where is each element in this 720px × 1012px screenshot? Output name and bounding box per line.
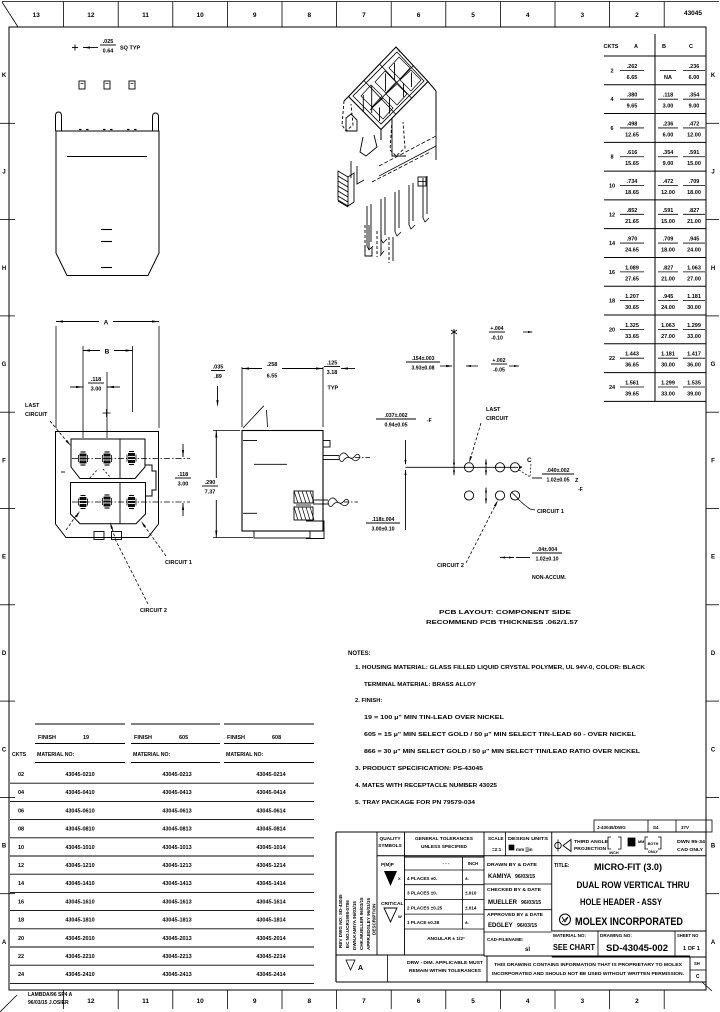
svg-text:6.00: 6.00 — [689, 75, 700, 81]
svg-text:THIS DRAWING CONTAINS INFORMAT: THIS DRAWING CONTAINS INFORMATION THAT I… — [494, 962, 683, 967]
svg-text:43045-0414: 43045-0414 — [256, 790, 286, 796]
svg-text:96/03/15: 96/03/15 — [521, 900, 541, 906]
svg-text:12.65: 12.65 — [625, 132, 639, 138]
svg-text:.290: .290 — [205, 480, 216, 486]
svg-text:CIRCUIT 2: CIRCUIT 2 — [437, 563, 464, 569]
svg-text:43045-1010: 43045-1010 — [65, 845, 94, 851]
svg-text:7: 7 — [362, 998, 366, 1005]
svg-text:1.02±0.10: 1.02±0.10 — [535, 557, 558, 563]
svg-text:1.02±0.05: 1.02±0.05 — [546, 478, 569, 484]
svg-text:96/03/15: 96/03/15 — [515, 874, 535, 880]
svg-text:43045-2013: 43045-2013 — [162, 936, 191, 942]
svg-text:.970: .970 — [627, 237, 638, 243]
svg-text:C: C — [689, 44, 693, 50]
svg-text:SD-43045-002: SD-43045-002 — [606, 943, 668, 954]
svg-text:.591: .591 — [663, 208, 674, 214]
svg-text:15.65: 15.65 — [625, 161, 639, 167]
svg-text:C: C — [527, 457, 532, 464]
svg-text:CKTS: CKTS — [604, 44, 619, 50]
svg-text:SYMBOLS: SYMBOLS — [378, 843, 403, 849]
svg-text:33.00: 33.00 — [687, 334, 701, 340]
svg-text:43045-2414: 43045-2414 — [256, 972, 286, 978]
svg-text:1.443: 1.443 — [625, 352, 639, 358]
svg-text:SQ TYP: SQ TYP — [120, 46, 141, 52]
svg-text:C: C — [696, 974, 700, 980]
svg-text:18: 18 — [18, 918, 24, 924]
svg-text:24: 24 — [609, 385, 616, 391]
svg-text:X: X — [398, 876, 401, 881]
svg-text:18.65: 18.65 — [625, 190, 639, 196]
svg-text:.125: .125 — [327, 361, 338, 367]
svg-text:33.65: 33.65 — [625, 334, 639, 340]
svg-text:DESCRIPTION: DESCRIPTION — [372, 903, 377, 935]
svg-text:.498: .498 — [627, 121, 638, 127]
svg-text:1.417: 1.417 — [687, 352, 701, 358]
svg-text:43045-1413: 43045-1413 — [162, 881, 191, 887]
svg-text:.827: .827 — [663, 265, 674, 271]
svg-text:43045-1614: 43045-1614 — [256, 899, 286, 905]
svg-text:24.00: 24.00 — [687, 248, 701, 254]
svg-text:43045-1213: 43045-1213 — [162, 863, 191, 869]
svg-text:5: 5 — [471, 12, 475, 19]
svg-text:.616: .616 — [627, 150, 638, 156]
svg-text:LAMBDA/96 SP4 A: LAMBDA/96 SP4 A — [28, 992, 73, 998]
svg-text:10: 10 — [609, 184, 615, 190]
svg-text:INCORPORATED AND SHOULD NOT BE: INCORPORATED AND SHOULD NOT BE USED WITH… — [492, 971, 684, 976]
svg-text:±.: ±. — [465, 920, 469, 925]
svg-text:18.00: 18.00 — [661, 248, 675, 254]
svg-text:12: 12 — [609, 212, 615, 218]
svg-text:6.65: 6.65 — [627, 75, 638, 81]
svg-text:19 = 100 µ" MIN TIN-LEAD OVER: 19 = 100 µ" MIN TIN-LEAD OVER NICKEL — [364, 715, 505, 721]
svg-text:43045-0813: 43045-0813 — [162, 827, 191, 833]
svg-text:C: C — [2, 747, 7, 753]
svg-text:APPR.EDGLEY 96/03/15: APPR.EDGLEY 96/03/15 — [366, 898, 371, 950]
svg-text:GENERAL TOLERANCES: GENERAL TOLERANCES — [415, 836, 474, 842]
svg-text:W: W — [398, 914, 402, 919]
svg-text:1 PLACE ±0.38: 1 PLACE ±0.38 — [407, 920, 440, 925]
svg-text:24: 24 — [18, 972, 25, 978]
svg-text:866 = 30 µ" MIN SELECT GOLD /: 866 = 30 µ" MIN SELECT GOLD / 50 µ" MIN … — [364, 749, 641, 755]
svg-text:11: 11 — [142, 998, 149, 1005]
svg-text:A: A — [104, 320, 109, 327]
svg-text:EDGLEY: EDGLEY — [488, 923, 513, 929]
svg-text:.709: .709 — [663, 237, 674, 243]
svg-text:2: 2 — [635, 12, 639, 19]
svg-text:B: B — [662, 44, 666, 50]
svg-text:+.002: +.002 — [492, 358, 505, 364]
svg-text:4: 4 — [610, 97, 614, 103]
svg-text:43045-0214: 43045-0214 — [256, 772, 286, 778]
svg-text:J: J — [2, 169, 5, 175]
svg-text:±.010: ±.010 — [465, 891, 477, 896]
svg-text:3 PLACES ±0.: 3 PLACES ±0. — [407, 891, 437, 896]
svg-text:MATERIAL NO:: MATERIAL NO: — [553, 933, 586, 938]
svg-text:TITLE:: TITLE: — [554, 863, 570, 869]
svg-text:MUELLER: MUELLER — [488, 900, 518, 906]
svg-text:21.00: 21.00 — [661, 276, 675, 282]
svg-text:43045-0210: 43045-0210 — [65, 772, 94, 778]
svg-text:9: 9 — [253, 12, 257, 19]
svg-text:RECOMMEND PCB THICKNESS .062/1: RECOMMEND PCB THICKNESS .062/1.57 — [426, 620, 578, 626]
svg-text:- - -: - - - — [443, 861, 450, 866]
svg-text:.118: .118 — [178, 472, 188, 478]
svg-text:P(M)P: P(M)P — [381, 862, 394, 867]
svg-text:sl: sl — [525, 947, 530, 953]
svg-text:CAD-FILENAME:: CAD-FILENAME: — [487, 937, 524, 942]
svg-text:43045-0810: 43045-0810 — [65, 827, 94, 833]
svg-text:.04±.004: .04±.004 — [537, 547, 557, 553]
svg-text:4 PLACES ±0.: 4 PLACES ±0. — [407, 876, 437, 881]
svg-text:SCALE: SCALE — [488, 836, 504, 841]
svg-text:3.00±0.10: 3.00±0.10 — [371, 527, 394, 533]
svg-text:NA: NA — [664, 75, 672, 81]
svg-text:.025: .025 — [103, 39, 114, 45]
svg-text:43045-1613: 43045-1613 — [162, 899, 191, 905]
svg-text:7.37: 7.37 — [205, 490, 216, 496]
svg-text:.154±.003: .154±.003 — [411, 356, 434, 362]
svg-text:18.00: 18.00 — [687, 190, 701, 196]
svg-text:3: 3 — [580, 998, 584, 1005]
svg-text:9.00: 9.00 — [689, 104, 700, 110]
svg-text:.118: .118 — [91, 377, 101, 383]
svg-text:43045-0614: 43045-0614 — [256, 808, 286, 814]
svg-text:1.535: 1.535 — [687, 380, 701, 386]
svg-text:J-43045/DWG: J-43045/DWG — [597, 825, 626, 830]
svg-text:D: D — [711, 651, 716, 657]
svg-text:DESIGN UNITS: DESIGN UNITS — [508, 836, 548, 841]
svg-text:K: K — [2, 73, 7, 79]
svg-text:43045-0410: 43045-0410 — [65, 790, 94, 796]
svg-text:1.299: 1.299 — [687, 323, 701, 329]
svg-text:DUAL ROW VERTICAL THRU: DUAL ROW VERTICAL THRU — [577, 880, 690, 891]
svg-text:MATERIAL NO:: MATERIAL NO: — [133, 752, 171, 758]
svg-text:19: 19 — [83, 735, 89, 741]
svg-text:TERMINAL MATERIAL: BRASS ALLOY: TERMINAL MATERIAL: BRASS ALLOY — [364, 682, 476, 688]
svg-text:B: B — [711, 844, 716, 850]
svg-text:-0.05: -0.05 — [493, 368, 505, 374]
svg-text:15.00: 15.00 — [661, 219, 675, 225]
svg-text:DRW - DIM. APPLICABLE MUST: DRW - DIM. APPLICABLE MUST — [407, 960, 483, 965]
svg-text:0.94±0.05: 0.94±0.05 — [384, 423, 407, 429]
svg-text:12: 12 — [18, 863, 24, 869]
svg-text:15.00: 15.00 — [687, 161, 701, 167]
svg-text:16: 16 — [609, 270, 615, 276]
svg-text:22: 22 — [609, 356, 615, 362]
svg-text:39.00: 39.00 — [687, 391, 701, 397]
svg-text:CAD ONLY: CAD ONLY — [677, 847, 703, 852]
svg-text:APPROVED BY & DATE: APPROVED BY & DATE — [487, 912, 543, 917]
svg-text:E: E — [2, 555, 6, 561]
svg-text:G: G — [711, 362, 716, 368]
svg-text:14: 14 — [609, 241, 616, 247]
svg-text:1.561: 1.561 — [625, 380, 639, 386]
svg-text:-F: -F — [578, 487, 583, 493]
svg-text:.354: .354 — [663, 150, 675, 156]
svg-text:H: H — [2, 266, 6, 272]
svg-text:PCB LAYOUT: COMPONENT SIDE: PCB LAYOUT: COMPONENT SIDE — [439, 610, 571, 616]
svg-text:A: A — [358, 965, 363, 972]
svg-text:F: F — [2, 458, 6, 464]
svg-text:27.00: 27.00 — [661, 334, 675, 340]
svg-text:1.089: 1.089 — [625, 265, 639, 271]
svg-text:27.00: 27.00 — [687, 276, 701, 282]
svg-text:DWN 95-34: DWN 95-34 — [677, 839, 706, 844]
svg-text:43045-1410: 43045-1410 — [65, 881, 94, 887]
svg-text:12: 12 — [87, 12, 95, 19]
svg-text:.472: .472 — [663, 179, 674, 185]
svg-text:HOLE HEADER - ASSY: HOLE HEADER - ASSY — [580, 897, 663, 908]
svg-text:605 = 15 µ" MIN SELECT GOLD /: 605 = 15 µ" MIN SELECT GOLD / 50 µ" MIN … — [364, 732, 637, 738]
svg-text:CIRCUIT 1: CIRCUIT 1 — [537, 509, 564, 515]
svg-text:14: 14 — [18, 881, 25, 887]
svg-text:2 PLACES ±0.25: 2 PLACES ±0.25 — [407, 905, 443, 910]
svg-text:.258: .258 — [267, 362, 278, 368]
svg-text:6: 6 — [610, 126, 613, 132]
svg-text:9.00: 9.00 — [663, 161, 674, 167]
svg-text:12: 12 — [87, 998, 95, 1005]
svg-text:1.299: 1.299 — [661, 380, 675, 386]
svg-text:43045-0213: 43045-0213 — [162, 772, 191, 778]
svg-text:SH: SH — [694, 961, 700, 966]
svg-text:6: 6 — [417, 998, 421, 1005]
svg-text:2: 2 — [610, 68, 613, 74]
svg-text:43045-0613: 43045-0613 — [162, 808, 191, 814]
svg-text:43045-2410: 43045-2410 — [65, 972, 94, 978]
svg-text:43045-1210: 43045-1210 — [65, 863, 94, 869]
svg-text:3.00: 3.00 — [178, 482, 189, 488]
svg-text:CIRCUIT: CIRCUIT — [25, 412, 48, 418]
svg-text:.118: .118 — [663, 93, 673, 99]
svg-text:33.00: 33.00 — [661, 391, 675, 397]
svg-text:12.00: 12.00 — [687, 132, 701, 138]
svg-text:.236: .236 — [663, 121, 674, 127]
svg-text:SEE CHART: SEE CHART — [553, 943, 595, 952]
svg-text:7: 7 — [362, 12, 366, 19]
svg-text:FINISH: FINISH — [227, 735, 245, 741]
svg-text:.472: .472 — [689, 121, 700, 127]
svg-text:ANGULAR ± 1/2°: ANGULAR ± 1/2° — [427, 936, 465, 942]
svg-text:43045-0610: 43045-0610 — [65, 808, 94, 814]
svg-text:9.65: 9.65 — [627, 104, 638, 110]
svg-text:18: 18 — [609, 299, 615, 305]
svg-text:REMAIN WITHIN TOLERANCES: REMAIN WITHIN TOLERANCES — [409, 968, 481, 973]
svg-text:43045-2413: 43045-2413 — [162, 972, 191, 978]
svg-text:30.00: 30.00 — [687, 305, 701, 311]
svg-text:FINISH: FINISH — [38, 735, 56, 741]
svg-text:43045-1014: 43045-1014 — [256, 845, 286, 851]
svg-text:QUALITY: QUALITY — [379, 836, 401, 842]
svg-text:43045-0814: 43045-0814 — [256, 827, 286, 833]
svg-text:13: 13 — [33, 12, 41, 19]
svg-text:43045-1814: 43045-1814 — [256, 918, 286, 924]
svg-text:43045-2010: 43045-2010 — [65, 936, 94, 942]
svg-text:8: 8 — [307, 12, 311, 19]
svg-text:43045: 43045 — [684, 10, 702, 17]
svg-text:3.93±0.08: 3.93±0.08 — [411, 366, 434, 372]
svg-text:08: 08 — [18, 827, 24, 833]
svg-text:16: 16 — [18, 899, 24, 905]
svg-text:8: 8 — [610, 155, 613, 161]
svg-text:S4: S4 — [653, 825, 659, 830]
svg-text:30.65: 30.65 — [625, 305, 639, 311]
svg-text:K: K — [711, 73, 716, 79]
svg-text:96/03/15: 96/03/15 — [517, 923, 537, 929]
svg-text:C: C — [711, 747, 716, 753]
svg-text:27.65: 27.65 — [625, 276, 639, 282]
svg-text:.354: .354 — [689, 93, 701, 99]
svg-text:.734: .734 — [627, 179, 639, 185]
svg-text:4. MATES WITH RECEPTACLE NUMBE: 4. MATES WITH RECEPTACLE NUMBER 43025 — [355, 783, 498, 789]
svg-text:43045-1610: 43045-1610 — [65, 899, 94, 905]
svg-text:4: 4 — [526, 12, 530, 19]
svg-text:.118±.004: .118±.004 — [372, 517, 395, 523]
svg-text:605: 605 — [179, 735, 188, 741]
svg-text:NOTES:: NOTES: — [348, 651, 371, 657]
svg-text:CIRCUIT 2: CIRCUIT 2 — [140, 608, 167, 614]
svg-text:43045-2210: 43045-2210 — [65, 954, 94, 960]
svg-text:04: 04 — [18, 790, 25, 796]
svg-text:20: 20 — [609, 327, 615, 333]
svg-text:3.00: 3.00 — [663, 104, 674, 110]
svg-text:20: 20 — [18, 936, 24, 942]
svg-text:DRAWING NO:: DRAWING NO: — [600, 933, 632, 938]
svg-text:1.207: 1.207 — [625, 294, 639, 300]
svg-text:6.00: 6.00 — [663, 132, 674, 138]
svg-text:SHEET NO: SHEET NO — [677, 933, 699, 938]
svg-text:1.063: 1.063 — [661, 323, 675, 329]
svg-text:43045-2214: 43045-2214 — [256, 954, 286, 960]
svg-text:1.063: 1.063 — [687, 265, 701, 271]
svg-text:5. TRAY PACKAGE FOR PN 79579-0: 5. TRAY PACKAGE FOR PN 79579-034 — [355, 800, 476, 806]
svg-text:12.00: 12.00 — [661, 190, 675, 196]
svg-text:0.64: 0.64 — [103, 49, 115, 55]
svg-text:4: 4 — [526, 998, 530, 1005]
svg-text:43045-1414: 43045-1414 — [256, 881, 286, 887]
svg-text:.040±.002: .040±.002 — [546, 468, 569, 474]
svg-text:LAST: LAST — [25, 403, 40, 409]
svg-text:mm []in: mm []in — [516, 847, 533, 852]
svg-text:KAMIYA: KAMIYA — [488, 874, 512, 880]
svg-text:21.00: 21.00 — [687, 219, 701, 225]
svg-text:608: 608 — [272, 735, 281, 741]
svg-text:BOTH: BOTH — [648, 842, 659, 846]
svg-text:22: 22 — [18, 954, 24, 960]
svg-text:CRITICAL: CRITICAL — [381, 901, 403, 907]
svg-text:CIRCUIT: CIRCUIT — [486, 416, 509, 422]
svg-text:30.00: 30.00 — [661, 363, 675, 369]
svg-text:.709: .709 — [689, 179, 700, 185]
svg-text:.262: .262 — [627, 64, 638, 70]
svg-text:43045-1013: 43045-1013 — [162, 845, 191, 851]
svg-text:10: 10 — [196, 12, 204, 19]
svg-text:3. PRODUCT SPECIFICATION: PS-4: 3. PRODUCT SPECIFICATION: PS-43045 — [355, 766, 484, 772]
svg-text:+.004: +.004 — [490, 326, 503, 332]
svg-text:H: H — [711, 266, 715, 272]
svg-text:8: 8 — [307, 998, 311, 1005]
svg-text:J: J — [711, 169, 714, 175]
svg-text:UNLESS SPECIFIED: UNLESS SPECIFIED — [421, 844, 468, 850]
svg-text:A: A — [711, 940, 716, 946]
svg-text:36.00: 36.00 — [687, 363, 701, 369]
svg-text:6: 6 — [417, 12, 421, 19]
svg-text:1.181: 1.181 — [687, 294, 701, 300]
svg-text:NON-ACCUM.: NON-ACCUM. — [532, 575, 567, 581]
svg-text:06: 06 — [18, 808, 24, 814]
svg-text:±.014: ±.014 — [465, 905, 477, 910]
svg-text:.035: .035 — [213, 365, 224, 371]
svg-text:24.00: 24.00 — [661, 305, 675, 311]
svg-text:43045-0413: 43045-0413 — [162, 790, 191, 796]
svg-text:.236: .236 — [689, 64, 700, 70]
svg-text:MATERIAL NO:: MATERIAL NO: — [226, 752, 264, 758]
svg-text:2: 2 — [635, 998, 639, 1005]
svg-text:MATERIAL NO:: MATERIAL NO: — [37, 752, 75, 758]
svg-text:INCH: INCH — [609, 851, 619, 855]
svg-text:.945: .945 — [689, 237, 700, 243]
svg-text:43045-2014: 43045-2014 — [256, 936, 286, 942]
svg-text:A: A — [2, 940, 7, 946]
svg-text:43045-1810: 43045-1810 — [65, 918, 94, 924]
svg-text:21.65: 21.65 — [625, 219, 639, 225]
svg-text:36.65: 36.65 — [625, 363, 639, 369]
svg-text:B: B — [105, 349, 110, 356]
svg-text:1. HOUSING MATERIAL: GLASS FIL: 1. HOUSING MATERIAL: GLASS FILLED LIQUID… — [355, 665, 646, 671]
svg-text:39.65: 39.65 — [625, 391, 639, 397]
svg-text:10: 10 — [18, 845, 24, 851]
svg-text:5: 5 — [471, 998, 475, 1005]
svg-text:1.181: 1.181 — [661, 352, 675, 358]
svg-text:CHECKED BY & DATE: CHECKED BY & DATE — [487, 887, 541, 892]
svg-text:96/03/15 J.OSIER: 96/03/15 J.OSIER — [28, 1000, 69, 1006]
svg-text:37V: 37V — [681, 825, 689, 830]
svg-text:CHK.MUELLER 96/03/15: CHK.MUELLER 96/03/15 — [359, 897, 364, 950]
svg-text:F: F — [711, 458, 715, 464]
svg-text:E: E — [711, 555, 715, 561]
svg-text:3.00: 3.00 — [91, 387, 102, 393]
svg-text:2. FINISH:: 2. FINISH: — [355, 698, 382, 704]
svg-text:MICRO-FIT (3.0): MICRO-FIT (3.0) — [594, 862, 662, 873]
svg-text:43045-2213: 43045-2213 — [162, 954, 191, 960]
svg-text:CKTS: CKTS — [12, 752, 27, 758]
svg-text:G: G — [2, 362, 7, 368]
svg-text:INCH: INCH — [468, 861, 478, 866]
svg-text:-F: -F — [427, 418, 432, 424]
svg-text:REV DWG NO: SD-43045: REV DWG NO: SD-43045 — [338, 894, 343, 948]
svg-text:.037±.002: .037±.002 — [384, 413, 407, 419]
svg-text:43045-1813: 43045-1813 — [162, 918, 191, 924]
svg-text:6.55: 6.55 — [267, 374, 278, 380]
svg-text:10: 10 — [196, 998, 204, 1005]
svg-text:3: 3 — [580, 12, 584, 19]
svg-text:1 OF 1: 1 OF 1 — [683, 946, 700, 952]
svg-text:FINISH: FINISH — [134, 735, 152, 741]
svg-text:43045-1214: 43045-1214 — [256, 863, 286, 869]
svg-text:.852: .852 — [627, 208, 638, 214]
svg-text:A: A — [634, 44, 638, 50]
svg-text:MM: MM — [638, 840, 644, 844]
svg-text:DRAWN BY & DATE: DRAWN BY & DATE — [487, 862, 537, 867]
svg-text:THIRD ANGLE: THIRD ANGLE — [574, 839, 608, 844]
svg-text:B: B — [2, 844, 7, 850]
svg-text:=2:1: =2:1 — [492, 847, 502, 852]
svg-text:1.325: 1.325 — [625, 323, 639, 329]
svg-text:LAST: LAST — [486, 407, 501, 413]
svg-text:PROJECTION: PROJECTION — [574, 846, 606, 851]
svg-text:.591: .591 — [689, 150, 700, 156]
svg-text:CIRCUIT 1: CIRCUIT 1 — [165, 560, 192, 566]
svg-text:24.65: 24.65 — [625, 248, 639, 254]
